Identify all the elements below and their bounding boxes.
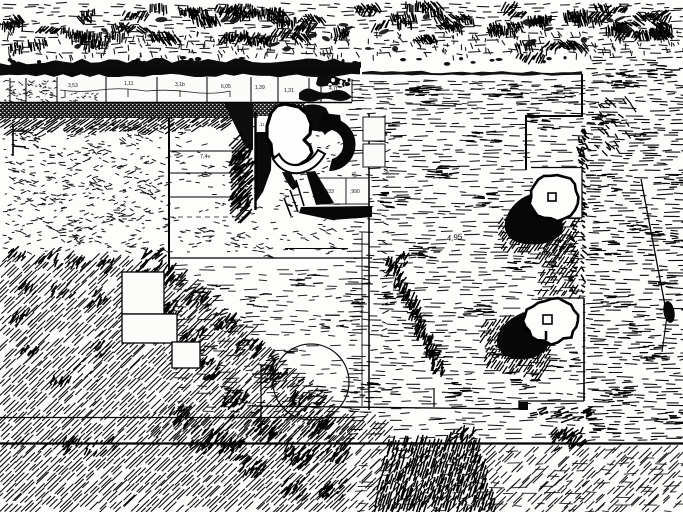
svg-text:5,5: 5,5 [350, 171, 357, 179]
svg-text:3,1b: 3,1b [175, 82, 185, 88]
svg-text:,990: ,990 [350, 189, 360, 195]
svg-text:6,05: 6,05 [221, 84, 231, 90]
svg-text:,1r: ,1r [259, 122, 265, 127]
svg-text:1,11: 1,11 [124, 81, 134, 87]
svg-text:1,39: 1,39 [255, 85, 265, 91]
svg-text:1,31: 1,31 [284, 88, 294, 94]
svg-text:7,4v: 7,4v [200, 154, 211, 160]
svg-text:1,5: 1,5 [382, 167, 389, 175]
svg-text:3,53: 3,53 [68, 83, 78, 89]
